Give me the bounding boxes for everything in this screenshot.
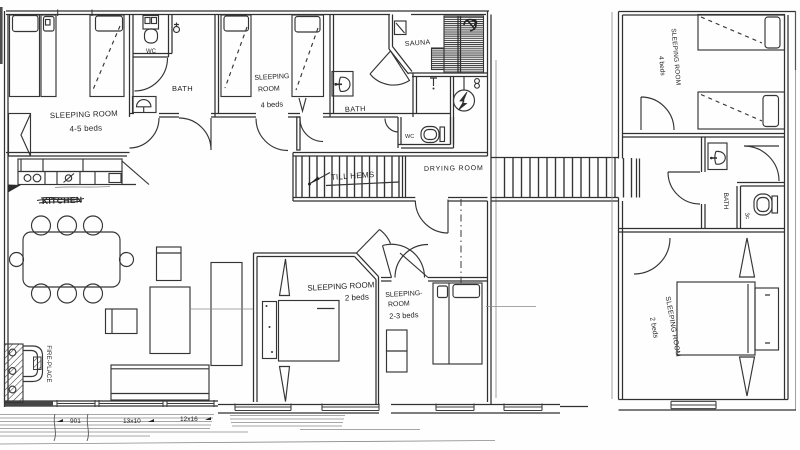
svg-text:ROOM: ROOM (388, 300, 410, 308)
svg-text:BATH: BATH (722, 193, 729, 210)
svg-text:KITCHEN: KITCHEN (42, 195, 83, 206)
svg-text:FIRE-PLACE: FIRE-PLACE (45, 345, 51, 382)
svg-text:4 beds: 4 beds (260, 99, 283, 109)
svg-text:2 beds: 2 beds (345, 292, 369, 302)
svg-text:BATH: BATH (172, 84, 193, 93)
svg-text:WC: WC (146, 49, 157, 55)
svg-text:DRYING ROOM: DRYING ROOM (424, 165, 484, 173)
svg-text:WC: WC (405, 134, 414, 140)
svg-text:13x10: 13x10 (123, 418, 141, 425)
svg-text:BATH: BATH (345, 104, 366, 114)
svg-text:3c: 3c (743, 212, 750, 219)
svg-text:4-5 beds: 4-5 beds (69, 123, 102, 133)
svg-text:12x16: 12x16 (180, 416, 198, 423)
svg-text:901: 901 (70, 418, 81, 425)
svg-text:2-3 beds: 2-3 beds (389, 310, 419, 321)
svg-text:ROOM: ROOM (258, 85, 280, 93)
